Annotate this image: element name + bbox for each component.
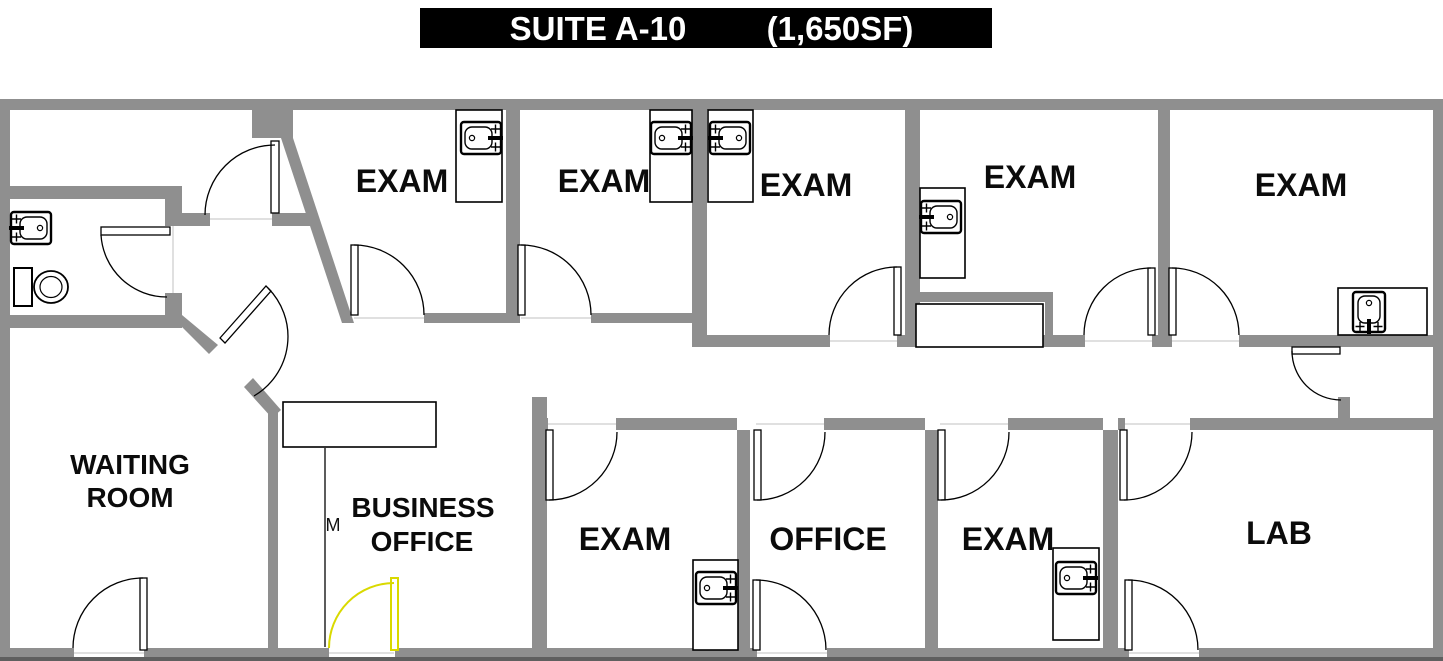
- exam7-door-swing: [938, 430, 1009, 500]
- waiting-room-exterior-door-swing: [73, 578, 147, 650]
- lab-door-swing: [1120, 430, 1192, 500]
- office-exterior-door-swing: [753, 580, 826, 650]
- exam4-door-swing: [1084, 268, 1155, 335]
- room-label-office: OFFICE: [769, 521, 886, 557]
- toilet-icon: [14, 268, 68, 306]
- suite-title: SUITE A-10: [510, 10, 687, 47]
- corridor-end-door-swing: [1292, 347, 1341, 400]
- exam6-door-swing: [546, 430, 617, 500]
- exam1-door-swing: [351, 245, 424, 315]
- exam5-sink-icon: [1353, 292, 1385, 334]
- exam6-sink-icon: [696, 572, 738, 604]
- room-label-exam-5: EXAM: [1255, 167, 1347, 203]
- reception-counter: [283, 402, 436, 447]
- exam3-sink-icon: [708, 122, 750, 154]
- room-label-business-line2: OFFICE: [371, 526, 474, 557]
- exam3-door-swing: [829, 267, 901, 335]
- wall-marker-m: M: [326, 515, 341, 535]
- room-label-exam-1: EXAM: [356, 163, 448, 199]
- office-door-swing: [754, 430, 825, 500]
- floor-plan-drawing: SUITE A-10 (1,650SF): [0, 0, 1443, 661]
- room-label-exam-2: EXAM: [558, 163, 650, 199]
- corridor-alcove-counter: [916, 304, 1043, 347]
- floor-plan-page: SUITE A-10 (1,650SF): [0, 0, 1443, 661]
- exam2-door-swing: [518, 245, 591, 315]
- suite-area: (1,650SF): [767, 10, 914, 47]
- room-label-exam-4: EXAM: [984, 159, 1076, 195]
- lab-exterior-door-swing: [1125, 580, 1198, 650]
- suite-title-bar: SUITE A-10 (1,650SF): [420, 8, 992, 48]
- exam2-sink-icon: [651, 122, 693, 154]
- room-label-exam-6: EXAM: [579, 521, 671, 557]
- room-label-exam-7: EXAM: [962, 521, 1054, 557]
- room-label-waiting-line1: WAITING: [70, 449, 190, 480]
- room-label-waiting-line2: ROOM: [86, 482, 173, 513]
- highlighted-entry-door-swing: [329, 578, 398, 650]
- exam1-sink-icon: [461, 122, 503, 154]
- room-label-lab: LAB: [1246, 515, 1312, 551]
- exam4-sink-icon: [919, 201, 961, 233]
- exam7-sink-icon: [1056, 562, 1098, 594]
- entry-door-swing: [205, 141, 279, 215]
- room-label-exam-3: EXAM: [760, 167, 852, 203]
- restroom-sink-icon: [9, 212, 51, 244]
- exam5-door-swing: [1169, 268, 1239, 335]
- room-label-business-line1: BUSINESS: [351, 492, 494, 523]
- restroom-door-swing: [101, 227, 170, 297]
